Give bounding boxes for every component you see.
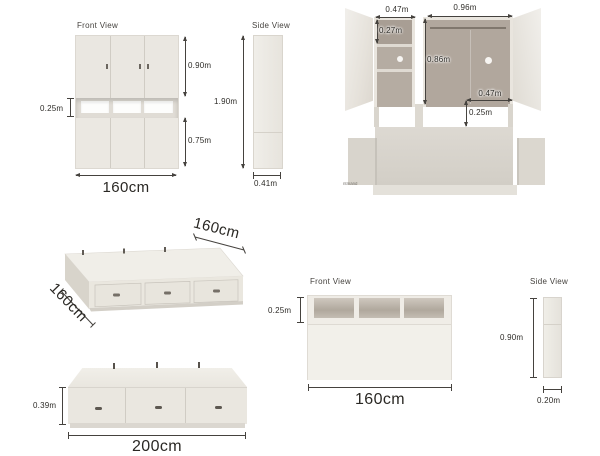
headboard-panel: [308, 324, 451, 380]
dimension-label: 0.75m: [188, 136, 211, 145]
platform-base: [373, 185, 517, 195]
drawer-handle: [215, 406, 222, 409]
dimension-label: 200cm: [132, 438, 182, 456]
headboard-side-drawing: [543, 297, 562, 378]
dimension-label: 0.25m: [40, 104, 63, 113]
dimension-line: [466, 101, 467, 126]
hanging-rod: [430, 27, 506, 29]
wardrobe-lower-doors: [76, 118, 178, 168]
bed-isometric-figure: 160cm 160cm: [25, 212, 255, 337]
dimension-label: 0.90m: [500, 333, 523, 342]
drawer-handle: [95, 407, 102, 410]
figure-title: Front View: [77, 21, 118, 30]
dimension-label: 0.96m: [453, 3, 476, 12]
dimension-line: [543, 389, 562, 390]
dimension-label: 0.25m: [469, 108, 492, 117]
wardrobe-upper-doors: [76, 36, 178, 98]
platform-side-door-left: [348, 138, 377, 185]
open-door-right: [513, 8, 541, 111]
dimension-label: 1.90m: [214, 97, 237, 106]
wardrobe-open-view-figure: ntmand 0.47m 0.96m 0.27m 0.86m 0.47m 0.2…: [340, 0, 550, 205]
dimension-line: [185, 37, 186, 96]
dimension-label: 0.25m: [268, 306, 291, 315]
panel-seam: [544, 324, 561, 325]
wardrobe-open-niche-row: [76, 98, 178, 118]
bed-platform: [375, 127, 513, 185]
dimension-line: [76, 175, 176, 176]
watermark-text: ntmand: [343, 182, 357, 186]
dimension-label: 0.27m: [379, 26, 402, 35]
door-handle: [147, 64, 149, 69]
dimension-line: [467, 100, 512, 101]
wardrobe-side-view-figure: Side View 1.90m 0.41m: [210, 18, 300, 208]
door-handle: [106, 64, 108, 69]
door-seam: [110, 36, 111, 98]
headboard-side-view-figure: Side View 0.90m 0.20m: [495, 270, 595, 410]
dimension-line: [428, 16, 512, 17]
dimension-line: [377, 20, 378, 43]
shelf-board: [377, 44, 412, 47]
interior-seam: [470, 30, 471, 104]
headboard-cubby-row: [308, 296, 451, 318]
dimension-label: 0.47m: [385, 5, 408, 14]
dimension-line: [253, 175, 281, 176]
dimension-line: [68, 435, 246, 436]
dimension-line: [425, 19, 426, 104]
frame-post: [415, 104, 423, 127]
finger-hole: [485, 57, 492, 64]
dimension-label: 0.41m: [254, 179, 277, 188]
dimension-line: [533, 298, 534, 378]
drawer-seam: [125, 388, 126, 424]
frame-post: [374, 107, 379, 127]
wardrobe-front-drawing: [75, 35, 179, 169]
product-dimension-diagram: { "page": { "background": "#ffffff" }, "…: [0, 0, 600, 450]
cubby: [314, 298, 354, 318]
frame-post: [508, 104, 513, 127]
dimension-label: 0.86m: [427, 55, 450, 64]
niche: [113, 101, 141, 113]
dimension-line: [243, 36, 244, 168]
figure-title: Front View: [310, 277, 351, 286]
hinge-mark: [113, 363, 115, 369]
door-handle: [139, 64, 141, 69]
dimension-line: [70, 98, 71, 117]
dimension-label: 0.20m: [537, 396, 560, 405]
open-door-left: [345, 8, 373, 111]
dimension-line: [185, 118, 186, 166]
platform-side-door-right: [517, 138, 545, 185]
bed-base: [70, 423, 245, 428]
headboard-drawing: [307, 295, 452, 380]
dimension-label: 0.39m: [33, 401, 56, 410]
figure-title: Side View: [530, 277, 568, 286]
figure-title: Side View: [252, 21, 290, 30]
dimension-line: [308, 387, 452, 388]
cubby: [404, 298, 444, 318]
dimension-line: [300, 297, 301, 323]
headboard-front-view-figure: Front View 0.25m 160cm: [260, 270, 460, 410]
cubby: [359, 298, 400, 318]
door-seam: [144, 36, 145, 98]
panel-seam: [254, 132, 282, 133]
dimension-line: [62, 387, 63, 425]
dimension-label: 160cm: [355, 391, 405, 409]
bed-top-slab: [68, 368, 247, 387]
door-seam: [110, 118, 111, 168]
dimension-line: [376, 17, 415, 18]
finger-hole: [397, 56, 403, 62]
drawer-seam: [185, 388, 186, 424]
dimension-label: 0.90m: [188, 61, 211, 70]
hinge-mark: [156, 362, 158, 368]
bed-drawer-row: [68, 387, 247, 424]
hinge-mark: [198, 362, 200, 368]
bed-front-view-figure: 0.39m 200cm: [25, 360, 280, 450]
wardrobe-side-drawing: [253, 35, 283, 169]
screw-mark: [312, 297, 314, 299]
dimension-label: 0.47m: [478, 89, 501, 98]
shelf-board: [377, 69, 412, 72]
door-seam: [144, 118, 145, 168]
dimension-label: 160cm: [102, 179, 149, 196]
niche: [144, 101, 173, 113]
drawer-handle: [155, 406, 162, 409]
niche: [81, 101, 109, 113]
